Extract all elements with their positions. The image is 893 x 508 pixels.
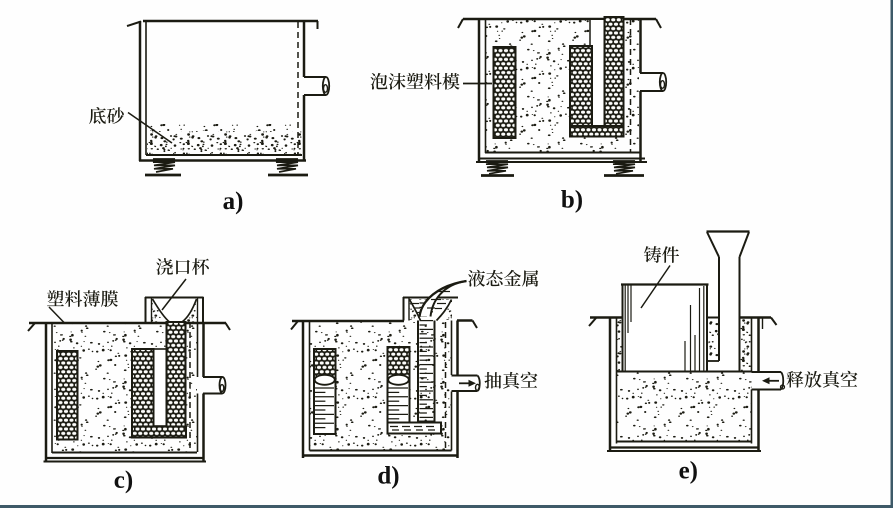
svg-text:a): a) xyxy=(223,188,244,215)
svg-text:c): c) xyxy=(114,467,133,494)
svg-text:e): e) xyxy=(679,458,698,485)
svg-text:b): b) xyxy=(561,187,583,214)
svg-text:d): d) xyxy=(377,463,399,490)
